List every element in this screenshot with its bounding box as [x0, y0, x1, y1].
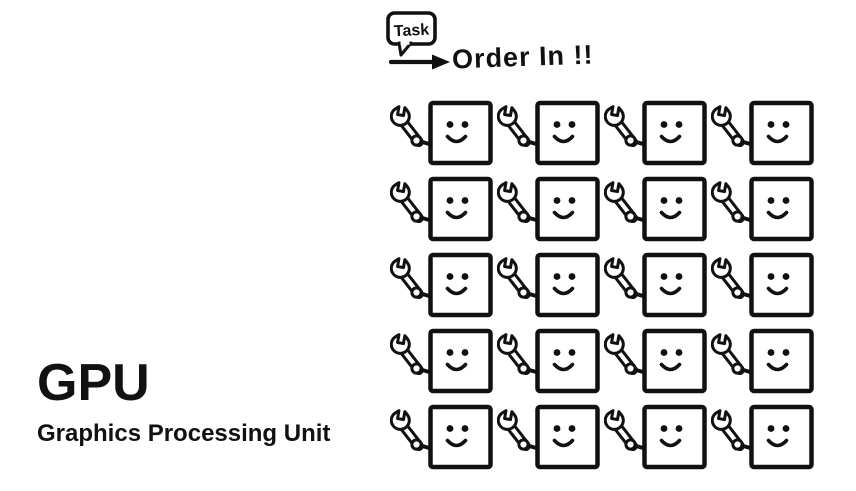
bubble-label: Task — [393, 22, 429, 41]
worker-hand — [733, 288, 742, 297]
worker-hand — [519, 136, 528, 145]
order-in-label: Order In !! — [452, 40, 595, 76]
core-box — [538, 103, 598, 163]
core-box — [538, 331, 598, 391]
gpu-core-worker — [497, 174, 604, 250]
gpu-core-worker — [390, 402, 497, 478]
task-speech-bubble-icon: Task — [386, 11, 440, 58]
core-box — [645, 255, 705, 315]
core-box — [752, 255, 812, 315]
core-box — [431, 331, 491, 391]
gpu-core-worker — [711, 98, 818, 174]
gpu-core-worker — [497, 326, 604, 402]
worker-hand — [519, 212, 528, 221]
worker-hand — [412, 136, 421, 145]
worker-hand — [519, 288, 528, 297]
core-box — [645, 103, 705, 163]
core-box — [431, 255, 491, 315]
core-box — [645, 179, 705, 239]
worker-hand — [626, 364, 635, 373]
gpu-core-worker — [711, 174, 818, 250]
core-box — [752, 407, 812, 467]
worker-hand — [733, 212, 742, 221]
core-box — [645, 331, 705, 391]
worker-hand — [519, 364, 528, 373]
gpu-core-worker — [604, 174, 711, 250]
gpu-full-name: Graphics Processing Unit — [37, 420, 330, 448]
core-box — [431, 103, 491, 163]
core-box — [538, 179, 598, 239]
worker-hand — [412, 440, 421, 449]
gpu-core-worker — [711, 250, 818, 326]
core-box — [431, 407, 491, 467]
core-box — [752, 331, 812, 391]
gpu-acronym: GPU — [37, 356, 330, 411]
gpu-core-worker — [711, 326, 818, 402]
worker-hand — [519, 440, 528, 449]
gpu-core-worker — [390, 98, 497, 174]
worker-hand — [733, 364, 742, 373]
right-arrow-icon — [388, 53, 452, 71]
gpu-core-worker — [604, 402, 711, 478]
core-box — [645, 407, 705, 467]
gpu-core-worker — [604, 250, 711, 326]
gpu-core-worker — [497, 250, 604, 326]
gpu-core-worker — [390, 326, 497, 402]
worker-hand — [412, 364, 421, 373]
gpu-illustration: Task Order In !! — [0, 0, 856, 491]
gpu-core-worker — [390, 174, 497, 250]
worker-hand — [412, 288, 421, 297]
worker-hand — [626, 136, 635, 145]
gpu-core-worker — [604, 98, 711, 174]
gpu-core-grid — [390, 98, 818, 478]
gpu-core-worker — [497, 402, 604, 478]
worker-hand — [626, 440, 635, 449]
worker-hand — [626, 288, 635, 297]
core-box — [752, 103, 812, 163]
core-box — [752, 179, 812, 239]
title-block: GPU Graphics Processing Unit — [37, 356, 330, 448]
core-box — [538, 407, 598, 467]
gpu-core-worker — [390, 250, 497, 326]
gpu-core-worker — [497, 98, 604, 174]
worker-hand — [412, 212, 421, 221]
core-box — [431, 179, 491, 239]
worker-hand — [626, 212, 635, 221]
worker-hand — [733, 136, 742, 145]
worker-hand — [733, 440, 742, 449]
gpu-core-worker — [711, 402, 818, 478]
gpu-core-worker — [604, 326, 711, 402]
core-box — [538, 255, 598, 315]
